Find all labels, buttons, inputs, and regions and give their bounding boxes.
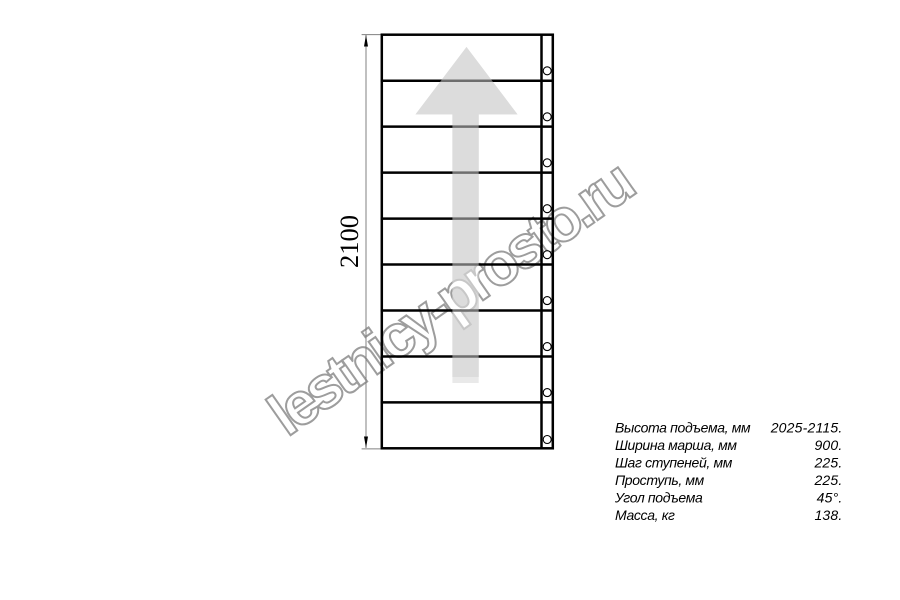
svg-text:2100: 2100 [334,215,364,268]
svg-text:225.: 225. [813,454,842,470]
svg-text:Масса, кг: Масса, кг [615,507,675,523]
svg-text:45°.: 45°. [817,489,843,505]
svg-text:Угол подъема: Угол подъема [614,489,703,505]
svg-text:138.: 138. [814,507,842,523]
svg-text:225.: 225. [813,472,842,488]
svg-text:Высота подъема, мм: Высота подъема, мм [615,419,751,435]
svg-text:Проступь, мм: Проступь, мм [615,472,705,488]
svg-text:Ширина марша, мм: Ширина марша, мм [615,437,737,453]
svg-text:Шаг ступеней, мм: Шаг ступеней, мм [615,454,733,470]
svg-text:900.: 900. [814,437,842,453]
svg-text:2025-2115.: 2025-2115. [770,419,843,435]
